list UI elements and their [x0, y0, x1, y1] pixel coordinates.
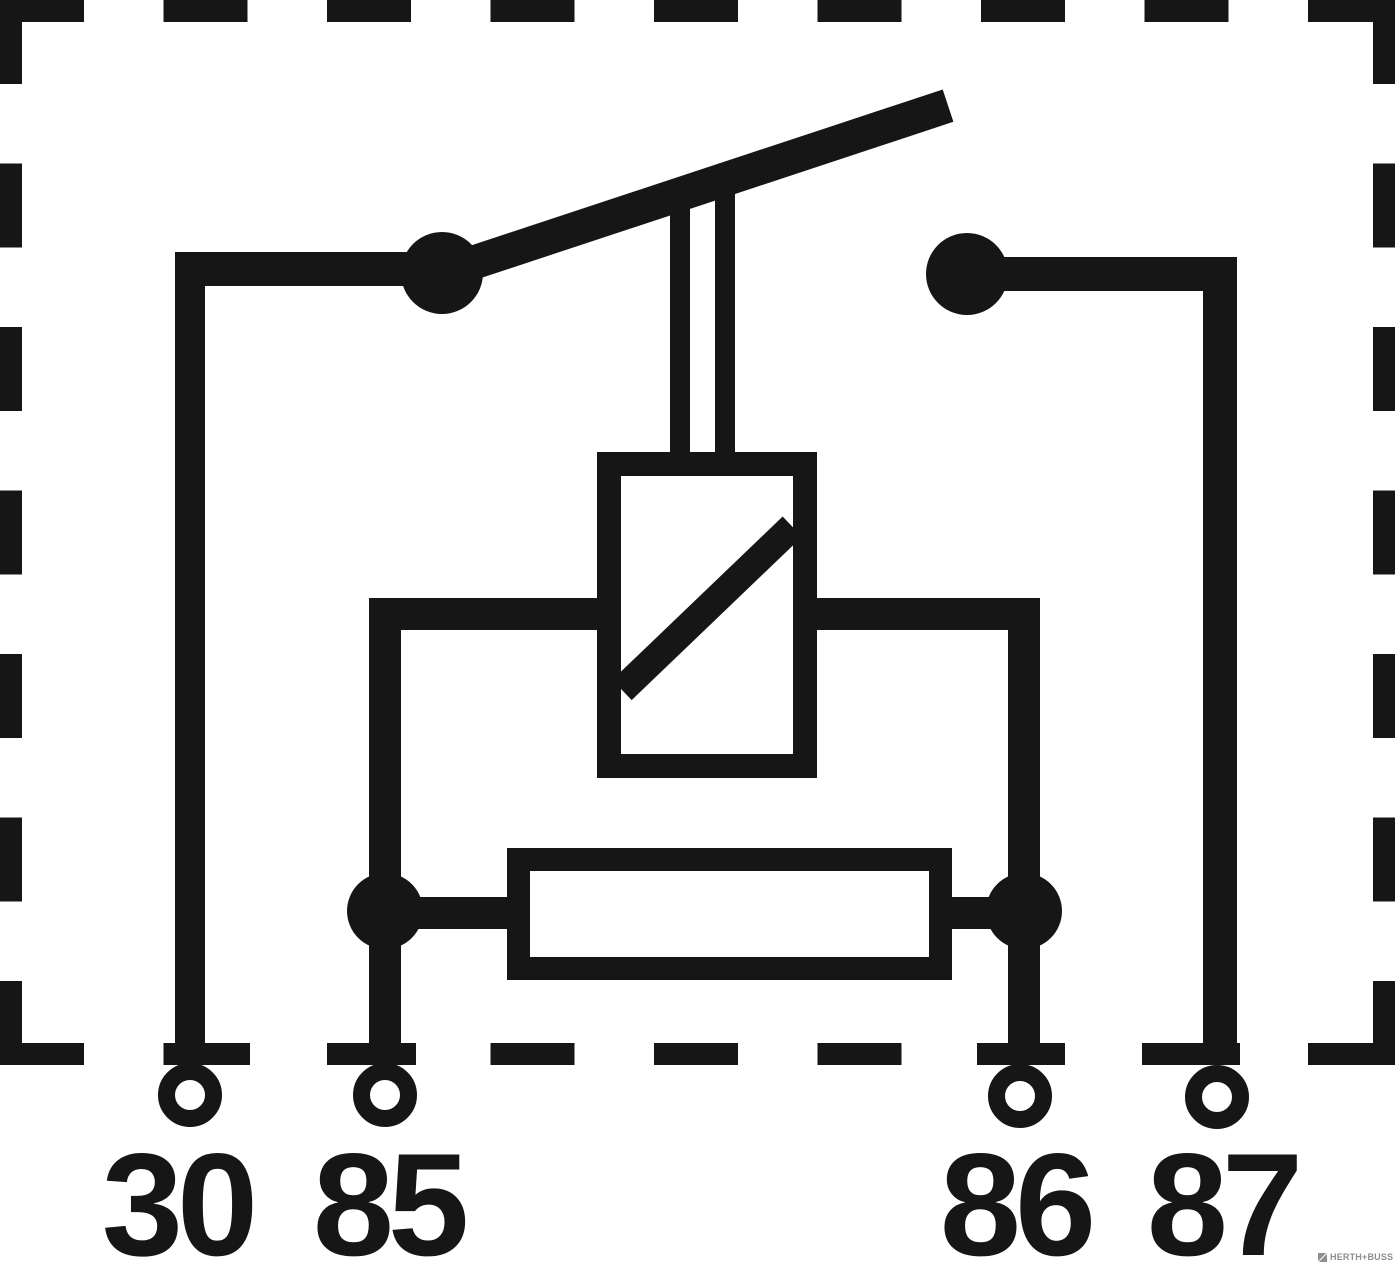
brand-logo: HERTH+BUSS: [1318, 1253, 1393, 1262]
terminal-label-30: 30: [67, 1130, 287, 1273]
terminal-label-87: 87: [1112, 1130, 1332, 1273]
border-cap-87: [1142, 1043, 1240, 1065]
border-cap-86: [977, 1043, 1061, 1065]
brand-logo-text: HERTH+BUSS: [1330, 1253, 1393, 1262]
contact-junction-dot: [926, 233, 1008, 315]
brand-logo-icon: [1318, 1253, 1327, 1262]
actuator-link-right: [715, 176, 735, 456]
border-left: [0, 0, 22, 1065]
border-cap-30: [166, 1043, 250, 1065]
wire-86-vertical: [1008, 598, 1040, 1065]
terminal-ring-86: [988, 1064, 1052, 1128]
junction-dot-86: [986, 873, 1062, 949]
wire-30-vertical: [175, 252, 205, 1065]
terminal-label-86: 86: [905, 1130, 1125, 1273]
terminal-ring-30: [158, 1063, 222, 1127]
actuator-link-left: [670, 190, 690, 456]
terminal-ring-85: [353, 1063, 417, 1127]
border-top: [0, 0, 1395, 22]
pivot-junction-dot: [401, 232, 483, 314]
switch-arm: [437, 90, 954, 290]
wire-85-vertical: [369, 598, 401, 1065]
resistor-symbol: [507, 848, 952, 980]
wire-87-vertical: [1203, 257, 1237, 1065]
terminal-label-85: 85: [278, 1130, 498, 1273]
relay-schematic: 30 85 86 87 HERTH+BUSS: [0, 0, 1395, 1273]
border-right: [1373, 0, 1395, 1065]
terminal-ring-87: [1185, 1065, 1249, 1129]
border-cap-85: [332, 1043, 416, 1065]
junction-dot-85: [347, 873, 423, 949]
